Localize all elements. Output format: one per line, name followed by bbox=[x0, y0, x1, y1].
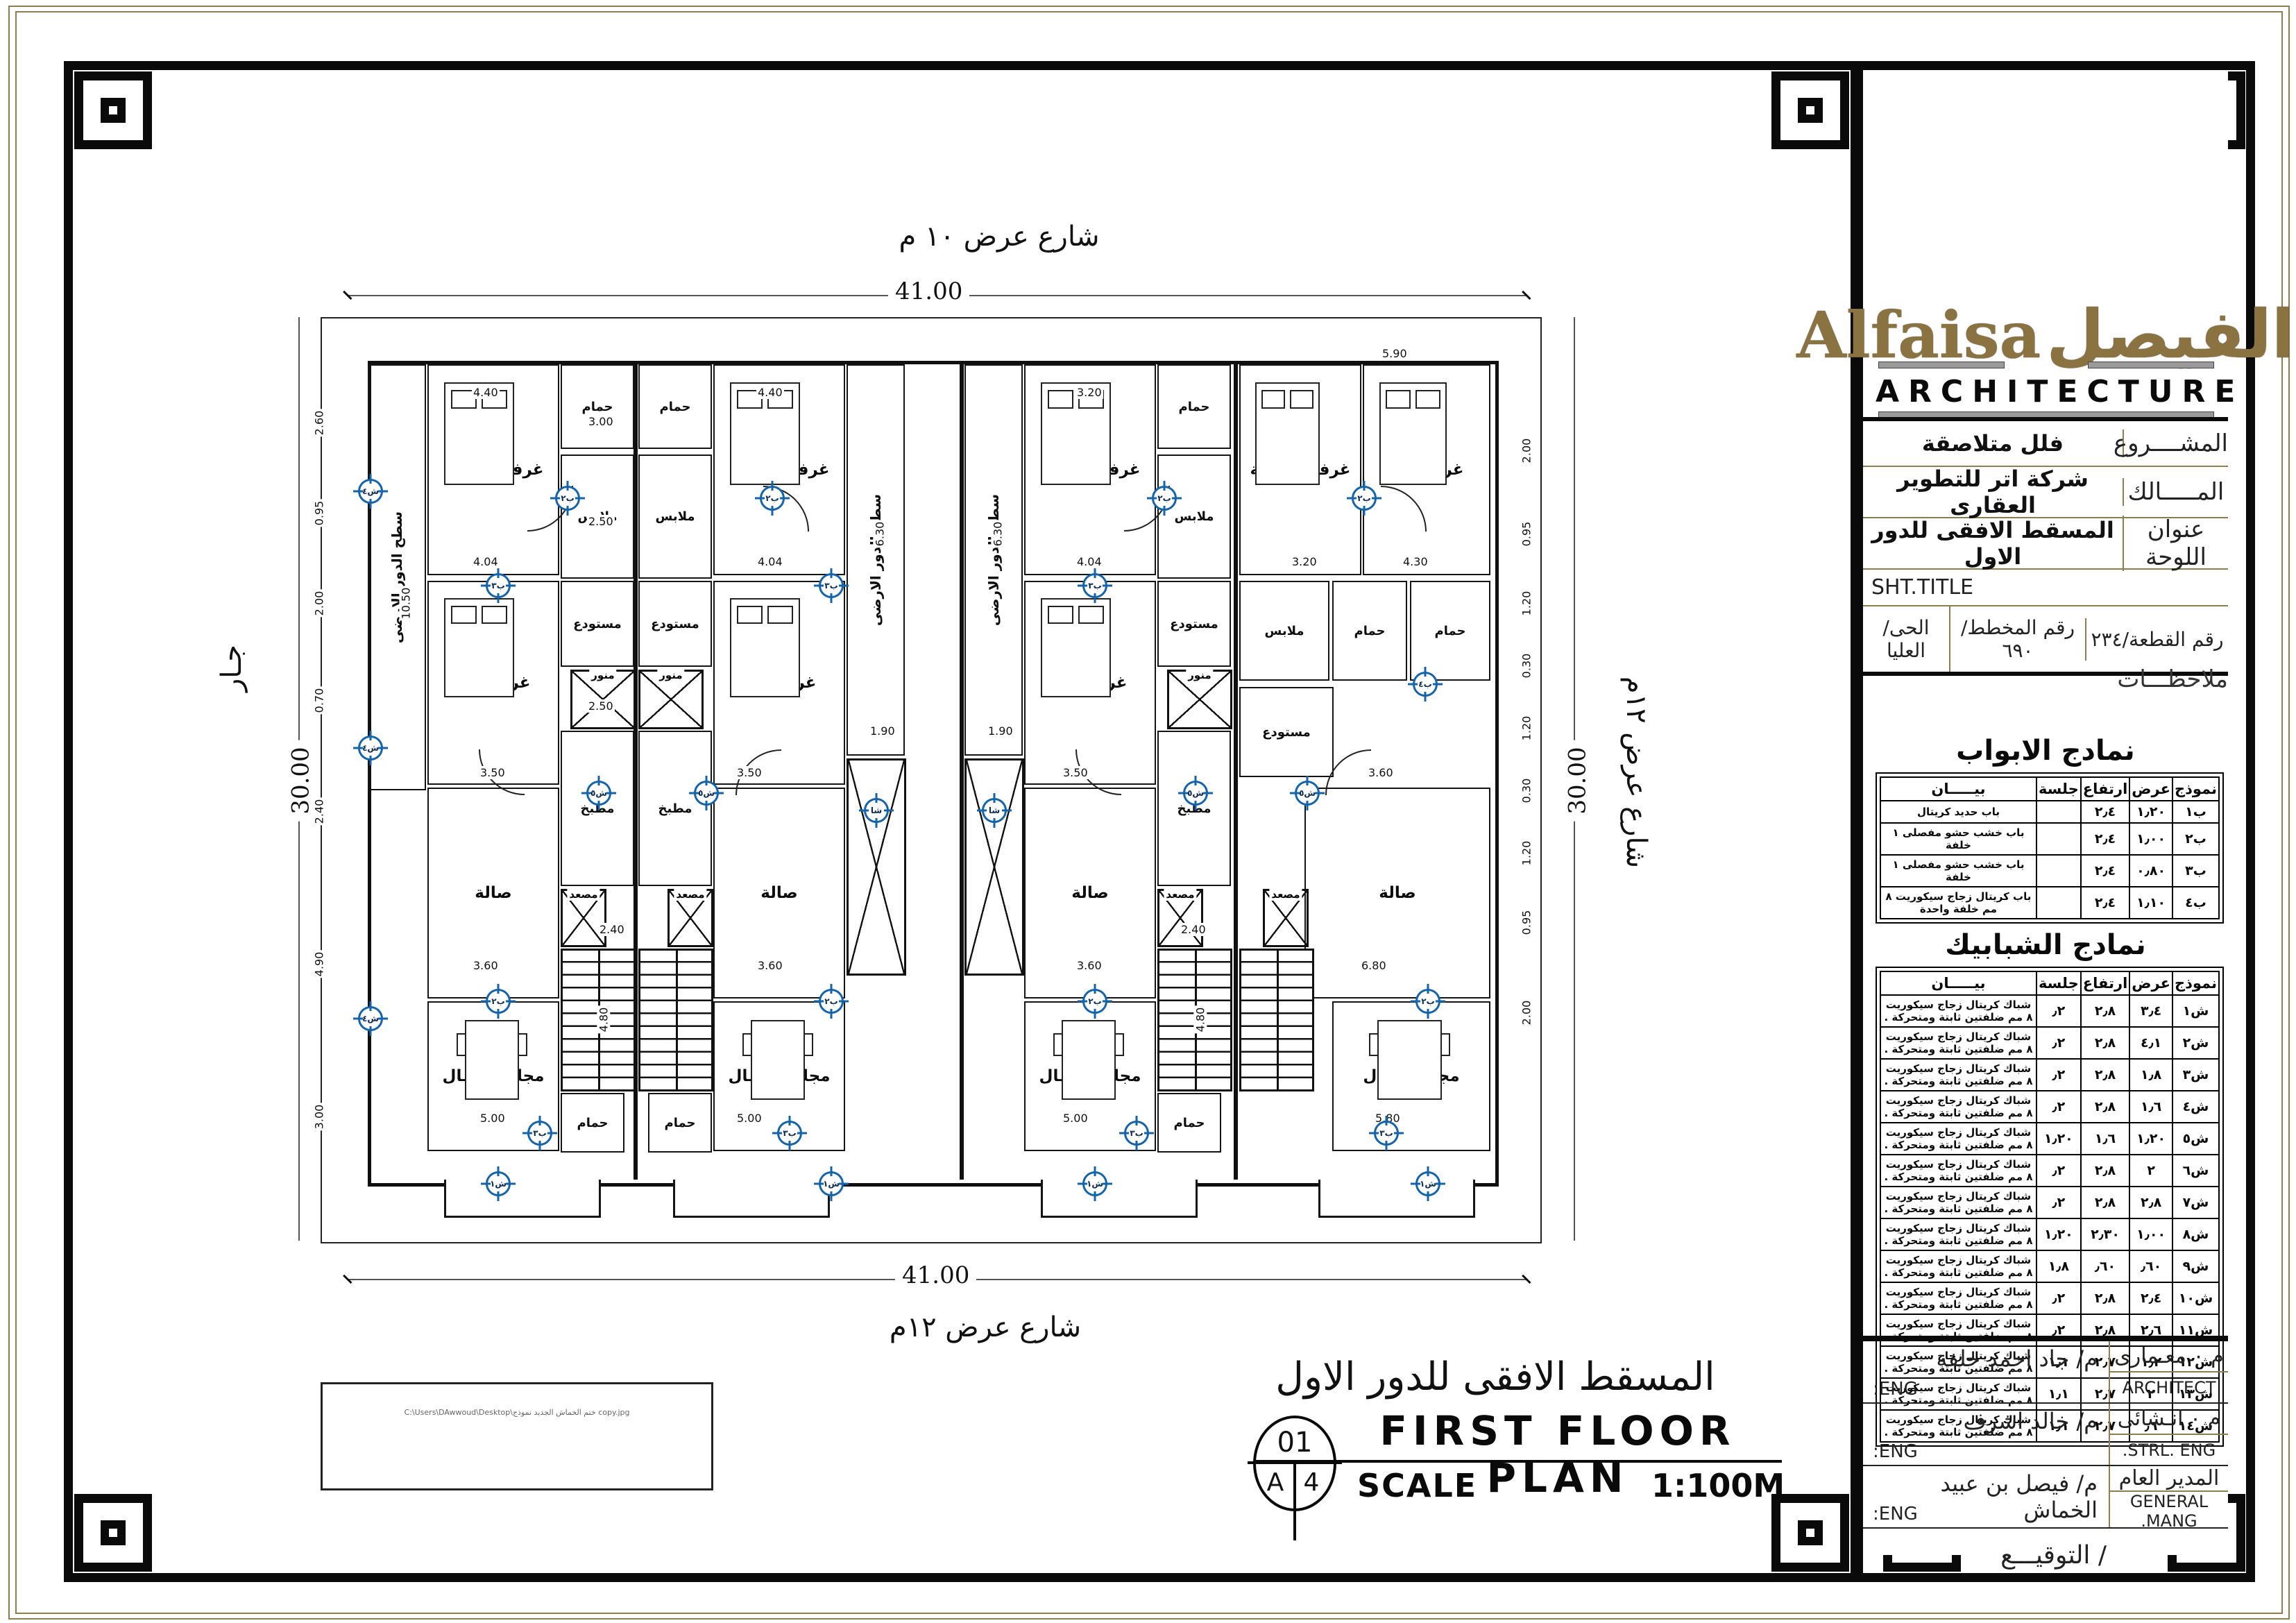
schedule-cell: ش٢ bbox=[2172, 1027, 2219, 1059]
schedule-row: ب٢١٫٠٠٢٫٤باب خشب حشو مفصلى ١ خلفة bbox=[1880, 823, 2219, 855]
opening-tag-label: شا bbox=[869, 803, 884, 818]
schedule-header: جلسة bbox=[2036, 777, 2081, 801]
scale-value: 1:100M bbox=[1651, 1467, 1780, 1504]
plot-number: رقم القطعة/٢٣٤ bbox=[2085, 618, 2228, 661]
signature-label: التوقيـــع / bbox=[2000, 1541, 2107, 1570]
engineer-eng-caption: ENG: bbox=[1873, 1379, 1918, 1400]
opening-tag-label: ب٢ bbox=[824, 994, 839, 1009]
opening-tag-label: ب٣ bbox=[1379, 1125, 1394, 1141]
info-row-sheet-title: عنوان اللوحة المسقط الافقى للدور الاول bbox=[1863, 518, 2228, 570]
logo-bar bbox=[2088, 362, 2214, 368]
schedule-cell: ١٫٦ bbox=[2129, 1091, 2172, 1123]
opening-tag-label: ش٥ bbox=[591, 785, 606, 801]
dimension-label: 2.60 bbox=[312, 409, 325, 437]
scale-label: SCALE bbox=[1357, 1467, 1477, 1504]
dimension-label: 3.50 bbox=[735, 766, 763, 779]
dimension-label: 1.90 bbox=[987, 724, 1014, 738]
opening-tag: ب٢ bbox=[486, 989, 511, 1014]
dimension-label: 5.00 bbox=[1062, 1112, 1089, 1125]
room: ملابس bbox=[1157, 454, 1231, 579]
schedule-row: ش٥١٫٢٠١٫٦١٫٢٠شباك كريتال زجاج سيكوريت ٨ … bbox=[1880, 1123, 2219, 1155]
schedule-cell: باب خشب حشو مفصلى ١ خلفة bbox=[1880, 855, 2036, 887]
schedule-cell: ٫٢ bbox=[2036, 1091, 2081, 1123]
project-info-table: المشــــروع فلل متلاصقة المـــــالك شركة… bbox=[1863, 417, 2228, 676]
schedule-cell: باب حديد كريتال bbox=[1880, 801, 2036, 823]
schedule-cell: شباك كريتال زجاج سيكوريت ٨ مم ضلفتين ثاب… bbox=[1880, 1187, 2036, 1218]
dimension-label: 4.40 bbox=[472, 386, 500, 399]
dimension-label: 5.00 bbox=[735, 1112, 763, 1125]
opening-tag-label: ش١ bbox=[824, 1176, 839, 1191]
dimension-label: 3.60 bbox=[1075, 959, 1103, 972]
table-icon bbox=[751, 1020, 805, 1099]
opening-tag-label: ب٢ bbox=[491, 994, 506, 1009]
drawing-sheet: شارع عرض ١٠ م 41.00 41.00 شارع عرض ١٢م 3… bbox=[0, 0, 2296, 1623]
room-label: حمام bbox=[665, 1116, 696, 1130]
schedule-cell: ٫٢ bbox=[2036, 1059, 2081, 1091]
opening-tag-label: ب٢ bbox=[1087, 994, 1103, 1009]
room-label: ملابس bbox=[1264, 624, 1304, 638]
schedule-cell bbox=[2036, 823, 2081, 855]
room-label: سطح الدور الارضى bbox=[389, 511, 405, 643]
info-value: فلل متلاصقة bbox=[1863, 430, 2123, 457]
engineer-role-ar: م ٠ انـشائى bbox=[2110, 1404, 2228, 1435]
street-label-top: شارع عرض ١٠ م bbox=[819, 221, 1180, 253]
window-schedule-title: نمادج الشبابيك bbox=[1863, 929, 2228, 961]
schedule-cell: ٣٫٤ bbox=[2129, 995, 2172, 1027]
room-label: مستودع bbox=[1170, 617, 1218, 631]
engineer-row: م ٠ انـشائىSTRL. ENG.م/ خالد اشرفENG: bbox=[1863, 1404, 2228, 1466]
dimension-label: 6.30 bbox=[991, 520, 1004, 548]
room: حمام bbox=[1157, 1093, 1221, 1153]
dimension-label: 4.40 bbox=[756, 386, 784, 399]
dimension-label: 2.40 bbox=[312, 798, 325, 826]
room-label: صالة bbox=[1379, 884, 1415, 902]
schedule-cell: ٢٫٤ bbox=[2081, 801, 2130, 823]
schedule-cell bbox=[2036, 887, 2081, 919]
opening-tag-label: ب٣ bbox=[1087, 578, 1103, 593]
schedule-row: ب٣٠٫٨٠٢٫٤باب خشب حشو مفصلى ١ خلفة bbox=[1880, 855, 2219, 887]
logo-bar bbox=[1878, 362, 2005, 368]
room: سطح الدور الارضى bbox=[964, 364, 1023, 756]
open-shaft bbox=[964, 758, 1024, 976]
schedule-row: ب١١٫٢٠٢٫٤باب حديد كريتال bbox=[1880, 801, 2219, 823]
dimension-label: 1.90 bbox=[869, 724, 896, 738]
dimension-label: 0.95 bbox=[1520, 520, 1533, 548]
dimension-label: 1.20 bbox=[1520, 715, 1533, 742]
schedule-cell bbox=[2036, 801, 2081, 823]
dimension-label: 0.95 bbox=[312, 500, 325, 527]
file-path-watermark: C:\Users\DAwwoud\Desktop\ختم الخماش الجد… bbox=[323, 1408, 711, 1417]
bed-icon bbox=[1041, 598, 1111, 697]
room-label: حمام bbox=[660, 400, 691, 414]
schedule-cell: ٢٫٨ bbox=[2081, 1155, 2130, 1187]
schedule-row: ش٨١٫٠٠٢٫٣٠١٫٢٠شباك كريتال زجاج سيكوريت ٨… bbox=[1880, 1218, 2219, 1250]
room-label: مستودع bbox=[1262, 725, 1311, 740]
shaft-label: مصعد bbox=[674, 888, 706, 901]
room: مستودع bbox=[1239, 687, 1334, 777]
schedule-cell: ٢٫٨ bbox=[2081, 1059, 2130, 1091]
engineer-role-en: ARCHITECT bbox=[2110, 1373, 2228, 1402]
dimension-label: 0.95 bbox=[1520, 909, 1533, 937]
opening-tag-label: ب٢ bbox=[1420, 994, 1436, 1009]
info-label: عنوان اللوحة bbox=[2123, 516, 2228, 571]
dimension-label: 6.80 bbox=[1360, 959, 1388, 972]
schedule-cell: ١٫٢٠ bbox=[2036, 1218, 2081, 1250]
schedule-cell: شباك كريتال زجاج سيكوريت ٨ مم ضلفتين ثاب… bbox=[1880, 1123, 2036, 1155]
opening-tag-label: ش٤ bbox=[363, 484, 378, 499]
dim-right-value: 30.00 bbox=[1564, 740, 1592, 821]
dimension-label: 3.60 bbox=[1367, 766, 1395, 779]
opening-tag: شا bbox=[864, 798, 889, 823]
opening-tag: ش٥ bbox=[1183, 781, 1208, 806]
bed-icon bbox=[1255, 382, 1320, 485]
schedule-cell: ٫٢ bbox=[2036, 1187, 2081, 1218]
title-block: Alfaisa الفيصل bbox=[1863, 70, 2228, 1555]
opening-tag: ب٣ bbox=[527, 1121, 552, 1146]
elevator-shaft: مصعد bbox=[1157, 889, 1203, 947]
dim-left-value: 30.00 bbox=[287, 740, 315, 821]
info-row-project: المشــــروع فلل متلاصقة bbox=[1863, 421, 2228, 467]
opening-tag-label: ش١ bbox=[1420, 1176, 1436, 1191]
detail-symbol-vline bbox=[1293, 1464, 1296, 1540]
table-icon bbox=[1062, 1020, 1116, 1099]
schedule-cell: ب٣ bbox=[2172, 855, 2219, 887]
staircase bbox=[638, 949, 713, 1091]
street-label-bottom: شارع عرض ١٢م bbox=[805, 1311, 1166, 1343]
opening-tag-label: ش٥ bbox=[699, 785, 714, 801]
room-label: صالة bbox=[1071, 884, 1108, 902]
room-label: ملابس bbox=[655, 509, 695, 524]
schedule-header: نموذج bbox=[2172, 777, 2219, 801]
street-label-right: شارع عرض ١٢م bbox=[1620, 677, 1652, 868]
room: سطح الدور الارضى bbox=[847, 364, 905, 756]
dimension-label: 2.00 bbox=[1520, 437, 1533, 465]
schedule-cell: ش٦ bbox=[2172, 1155, 2219, 1187]
info-value: شركة اتر للتطوير العقارى bbox=[1863, 466, 2123, 518]
dimension-label: 0.30 bbox=[1520, 652, 1533, 680]
engineer-role-en: STRL. ENG. bbox=[2110, 1435, 2228, 1465]
schedule-cell: شباك كريتال زجاج سيكوريت ٨ مم ضلفتين ثاب… bbox=[1880, 1282, 2036, 1314]
dimension-label: 4.80 bbox=[1193, 1006, 1207, 1034]
schedule-cell: ١٫٢٠ bbox=[2036, 1123, 2081, 1155]
shaft-label: منور bbox=[589, 669, 616, 681]
stamp-box: C:\Users\DAwwoud\Desktop\ختم الخماش الجد… bbox=[321, 1382, 713, 1490]
opening-tag: ب٤ bbox=[1413, 672, 1438, 697]
schedule-cell: ٢٫٨ bbox=[2081, 1187, 2130, 1218]
info-row-owner: المـــــالك شركة اتر للتطوير العقارى bbox=[1863, 467, 2228, 518]
logo-text-en: Alfaisa bbox=[1796, 310, 2041, 362]
schedule-cell: ش٧ bbox=[2172, 1187, 2219, 1218]
schedule-cell: ١٫٠٠ bbox=[2129, 1218, 2172, 1250]
detail-symbol-hline bbox=[1248, 1461, 1342, 1464]
schedule-row: ش٦٢٢٫٨٫٢شباك كريتال زجاج سيكوريت ٨ مم ضل… bbox=[1880, 1155, 2219, 1187]
room: صالة bbox=[1304, 788, 1490, 999]
street-label-left: جـار bbox=[216, 645, 248, 692]
schedule-cell: ٢٫٨ bbox=[2081, 1091, 2130, 1123]
room: حمام bbox=[561, 1093, 624, 1153]
schedule-cell: شباك كريتال زجاج سيكوريت ٨ مم ضلفتين ثاب… bbox=[1880, 1218, 2036, 1250]
dimension-label: 5.90 bbox=[1381, 347, 1409, 360]
schedule-cell: ٢٫٨ bbox=[2081, 1027, 2130, 1059]
opening-tag-label: ب٣ bbox=[824, 578, 839, 593]
schedule-header: عرض bbox=[2129, 777, 2172, 801]
opening-tag: ب٢ bbox=[1152, 486, 1177, 511]
room: حمام bbox=[648, 1093, 712, 1153]
room: مستودع bbox=[1157, 581, 1231, 667]
table-icon bbox=[1377, 1020, 1443, 1099]
schedule-cell: ٢٫٨ bbox=[2081, 995, 2130, 1027]
opening-tag: ش١ bbox=[486, 1171, 511, 1196]
opening-tag-label: ش١ bbox=[1087, 1176, 1103, 1191]
room: مستودع bbox=[561, 581, 634, 667]
shaft-label: منور bbox=[657, 669, 684, 681]
opening-tag-label: ش٤ bbox=[363, 1011, 378, 1026]
shaft-label: مصعد bbox=[1164, 888, 1196, 901]
room-label: صالة bbox=[475, 884, 511, 902]
schedule-cell: ١٫٢٠ bbox=[2129, 801, 2172, 823]
dimension-label: 6.30 bbox=[873, 520, 886, 548]
schedule-cell: ش١٠ bbox=[2172, 1282, 2219, 1314]
schedule-cell: ش١ bbox=[2172, 995, 2219, 1027]
opening-tag: ب٢ bbox=[555, 486, 580, 511]
opening-tag-label: ب٣ bbox=[532, 1125, 547, 1141]
opening-tag: ب٢ bbox=[1352, 486, 1377, 511]
schedule-cell: ب٤ bbox=[2172, 887, 2219, 919]
party-wall bbox=[1234, 361, 1238, 1180]
room-label: مستودع bbox=[651, 617, 699, 631]
schedule-cell: ش٩ bbox=[2172, 1250, 2219, 1282]
room-label: حمام bbox=[1354, 624, 1386, 638]
corner-ornament bbox=[1771, 1494, 1849, 1572]
opening-tag-label: ب٢ bbox=[560, 491, 575, 506]
room: سطح الدور الارضى bbox=[368, 364, 426, 790]
schedule-cell: ٤٫١ bbox=[2129, 1027, 2172, 1059]
dimension-label: 3.20 bbox=[1075, 386, 1103, 399]
engineer-role-en: GENERAL MANG. bbox=[2110, 1492, 2228, 1531]
corner-ornament bbox=[74, 71, 152, 149]
engineer-role-ar: المدير العام bbox=[2110, 1466, 2228, 1492]
corner-ornament bbox=[1771, 71, 1849, 149]
engineers-block: م ٠ معـمارىARCHITECTم/ جاد احمد خلفةENG:… bbox=[1863, 1336, 2228, 1529]
dimension-label: 4.80 bbox=[597, 1006, 610, 1034]
dimension-label: 4.04 bbox=[756, 555, 784, 568]
info-label: المـــــالك bbox=[2123, 478, 2228, 506]
opening-tag: ش٥ bbox=[694, 781, 719, 806]
room-label: مستودع bbox=[573, 617, 622, 631]
schedule-cell: ١٫٨ bbox=[2129, 1059, 2172, 1091]
room: حمام bbox=[1332, 581, 1407, 681]
elevator-shaft: مصعد bbox=[1263, 889, 1309, 947]
dimension-label: 4.04 bbox=[1075, 555, 1103, 568]
dimension-label: 4.04 bbox=[472, 555, 500, 568]
schedule-header: نموذج bbox=[2172, 971, 2219, 995]
opening-tag: ش٤ bbox=[358, 1006, 383, 1031]
room: حمام bbox=[561, 364, 634, 449]
schedule-cell: شباك كريتال زجاج سيكوريت ٨ مم ضلفتين ثاب… bbox=[1880, 1059, 2036, 1091]
schedule-cell: شباك كريتال زجاج سيكوريت ٨ مم ضلفتين ثاب… bbox=[1880, 1091, 2036, 1123]
info-value: المسقط الافقى للدور الاول bbox=[1863, 517, 2123, 570]
sheet-title-caption: SHT.TITLE bbox=[1863, 570, 2228, 606]
dim-top-value: 41.00 bbox=[888, 278, 969, 305]
detail-reference-symbol: 01 A 4 bbox=[1253, 1416, 1336, 1511]
entrance-porch bbox=[444, 1180, 601, 1218]
opening-tag: ب٢ bbox=[1082, 989, 1107, 1014]
schedule-row: ش٤١٫٦٢٫٨٫٢شباك كريتال زجاج سيكوريت ٨ مم … bbox=[1880, 1091, 2219, 1123]
schedule-row: ش٩٫٦٠٫٦٠١٫٨شباك كريتال زجاج سيكوريت ٨ مم… bbox=[1880, 1250, 2219, 1282]
party-wall bbox=[960, 361, 964, 1180]
opening-tag-label: ش٥ bbox=[1188, 785, 1203, 801]
open-shaft bbox=[847, 758, 906, 976]
room: مطبخ bbox=[638, 731, 712, 886]
dim-bottom-value: 41.00 bbox=[895, 1261, 976, 1289]
opening-tag: ب٢ bbox=[760, 486, 785, 511]
engineer-name: م/ خالد اشرف bbox=[1963, 1408, 2098, 1434]
schedule-header: ارتفاع bbox=[2081, 777, 2130, 801]
dimension-label: 3.20 bbox=[1291, 555, 1318, 568]
room-label: سطح الدور الارضى bbox=[867, 494, 884, 626]
schedule-header: جلسة bbox=[2036, 971, 2081, 995]
schedule-header: بيـــــان bbox=[1880, 777, 2036, 801]
schedule-cell: ١٫٠٠ bbox=[2129, 823, 2172, 855]
entrance-porch bbox=[673, 1180, 830, 1218]
dimension-label: 5.00 bbox=[479, 1112, 507, 1125]
opening-tag-label: ب٤ bbox=[1418, 677, 1433, 692]
schedule-cell: ٫٦٠ bbox=[2129, 1250, 2172, 1282]
schedule-cell: ش٣ bbox=[2172, 1059, 2219, 1091]
room-label: سطح الدور الارضى bbox=[985, 494, 1002, 626]
engineer-row: م ٠ معـمارىARCHITECTم/ جاد احمد خلفةENG: bbox=[1863, 1341, 2228, 1404]
dimension-label: 10.50 bbox=[399, 586, 412, 621]
schedule-cell: باب خشب حشو مفصلى ١ خلفة bbox=[1880, 823, 2036, 855]
opening-tag: ش٥ bbox=[586, 781, 611, 806]
bed-icon bbox=[730, 598, 800, 697]
opening-tag: ش١ bbox=[819, 1171, 844, 1196]
schedule-cell: ش٥ bbox=[2172, 1123, 2219, 1155]
opening-tag: ش٥ bbox=[1295, 781, 1320, 806]
door-schedule-table: نموذجعرضارتفاعجلسةبيـــــانب١١٫٢٠٢٫٤باب … bbox=[1876, 772, 2224, 924]
opening-tag-label: شا bbox=[987, 803, 1002, 818]
engineer-eng-caption: ENG: bbox=[1873, 1504, 1918, 1524]
engineer-name: م/ جاد احمد خلفة bbox=[1936, 1345, 2098, 1372]
opening-tag: ش٤ bbox=[358, 479, 383, 504]
schedule-row: ش٣١٫٨٢٫٨٫٢شباك كريتال زجاج سيكوريت ٨ مم … bbox=[1880, 1059, 2219, 1091]
light-well: منور bbox=[638, 670, 704, 729]
schedule-cell: ش٨ bbox=[2172, 1218, 2219, 1250]
detail-number: 01 bbox=[1256, 1427, 1334, 1459]
plan-title-arabic: المسقط الافقى للدور الاول bbox=[1214, 1354, 1776, 1400]
bed-icon bbox=[1379, 382, 1447, 485]
dimension-label: 3.50 bbox=[1062, 766, 1089, 779]
room: حمام bbox=[1410, 581, 1490, 681]
room-label: مطبخ bbox=[658, 801, 692, 816]
schedule-cell: شباك كريتال زجاج سيكوريت ٨ مم ضلفتين ثاب… bbox=[1880, 1250, 2036, 1282]
opening-tag-label: ب٢ bbox=[1357, 491, 1372, 506]
bed-icon bbox=[444, 598, 514, 697]
opening-tag: ش٤ bbox=[358, 736, 383, 760]
opening-tag: ب٣ bbox=[777, 1121, 802, 1146]
notes-label: ملاحظـــات bbox=[1863, 661, 2228, 693]
dimension-label: 2.50 bbox=[587, 699, 615, 713]
dimension-label: 0.70 bbox=[312, 687, 325, 715]
opening-tag-label: ب٢ bbox=[765, 491, 780, 506]
schedule-cell: ب١ bbox=[2172, 801, 2219, 823]
schedule-cell: ٢ bbox=[2129, 1155, 2172, 1187]
schedule-row: ش٢٤٫١٢٫٨٫٢شباك كريتال زجاج سيكوريت ٨ مم … bbox=[1880, 1027, 2219, 1059]
dimension-label: 0.30 bbox=[1520, 777, 1533, 805]
opening-tag: ب٢ bbox=[1415, 989, 1440, 1014]
dimension-label: 2.00 bbox=[1520, 999, 1533, 1027]
schedule-cell: ٫٢ bbox=[2036, 1027, 2081, 1059]
staircase bbox=[1239, 949, 1314, 1091]
schedule-header: بيـــــان bbox=[1880, 971, 2036, 995]
logo-architecture-text: ARCHITECTURE bbox=[1876, 374, 2216, 409]
schedule-row: ش١٣٫٤٢٫٨٫٢شباك كريتال زجاج سيكوريت ٨ مم … bbox=[1880, 995, 2219, 1027]
schedule-cell: شباك كريتال زجاج سيكوريت ٨ مم ضلفتين ثاب… bbox=[1880, 1155, 2036, 1187]
dimension-label: 2.50 bbox=[587, 515, 615, 528]
room-label: حمام bbox=[1179, 400, 1210, 414]
schedule-cell: ٢٫٤ bbox=[2129, 1282, 2172, 1314]
dimension-label: 1.20 bbox=[1520, 590, 1533, 618]
dimension-label: 3.50 bbox=[479, 766, 507, 779]
schedule-cell: ٫٢ bbox=[2036, 1282, 2081, 1314]
schedule-cell: ٢٫٤ bbox=[2081, 823, 2130, 855]
schedule-header: عرض bbox=[2129, 971, 2172, 995]
opening-tag-label: ب٣ bbox=[491, 578, 506, 593]
schedule-cell: ١٫٨ bbox=[2036, 1250, 2081, 1282]
detail-sheet-number: 4 bbox=[1296, 1468, 1327, 1497]
opening-tag-label: ب٣ bbox=[1129, 1125, 1144, 1141]
corner-ornament bbox=[74, 1494, 152, 1572]
schedule-cell: ٢٫٤ bbox=[2081, 855, 2130, 887]
opening-tag: ب٣ bbox=[1082, 573, 1107, 598]
opening-tag: ب٣ bbox=[819, 573, 844, 598]
engineer-eng-caption: ENG: bbox=[1873, 1441, 1918, 1462]
shaft-label: مصعد bbox=[567, 888, 599, 901]
room-label: حمام bbox=[1174, 1116, 1205, 1130]
schedule-row: ش٧٢٫٨٢٫٨٫٢شباك كريتال زجاج سيكوريت ٨ مم … bbox=[1880, 1187, 2219, 1218]
shaft-label: مصعد bbox=[1269, 888, 1302, 901]
schedule-cell: ب٢ bbox=[2172, 823, 2219, 855]
opening-tag-label: ب٣ bbox=[782, 1125, 797, 1141]
room: ملابس bbox=[1239, 581, 1329, 681]
info-label: المشــــروع bbox=[2123, 430, 2228, 457]
room: ملابس bbox=[638, 454, 712, 579]
shaft-label: منور bbox=[1186, 669, 1213, 681]
dimension-label: 2.40 bbox=[1180, 923, 1207, 936]
schedule-cell: ٢٫٨ bbox=[2129, 1187, 2172, 1218]
dimension-label: 3.60 bbox=[472, 959, 500, 972]
opening-tag: ب٣ bbox=[1374, 1121, 1399, 1146]
entrance-porch bbox=[1041, 1180, 1198, 1218]
room-label: ملابس bbox=[1174, 509, 1214, 524]
opening-tag-label: ب٢ bbox=[1157, 491, 1172, 506]
schedule-cell: ٠٫٨٠ bbox=[2129, 855, 2172, 887]
dimension-label: 1.20 bbox=[1520, 840, 1533, 867]
detail-sheet-letter: A bbox=[1260, 1468, 1291, 1497]
entrance-porch bbox=[1318, 1180, 1475, 1218]
schedule-cell: شباك كريتال زجاج سيكوريت ٨ مم ضلفتين ثاب… bbox=[1880, 995, 2036, 1027]
opening-tag-label: ش١ bbox=[491, 1176, 506, 1191]
dimension-label: 2.40 bbox=[598, 923, 626, 936]
schedule-cell: ٢٫٣٠ bbox=[2081, 1218, 2130, 1250]
schedule-header: ارتفاع bbox=[2081, 971, 2130, 995]
schedule-row: ب٤١٫١٠٢٫٤باب كريتال زجاج سيكوريت ٨ مم خل… bbox=[1880, 887, 2219, 919]
schedule-cell: ٢٫٨ bbox=[2081, 1282, 2130, 1314]
dimension-label: 3.60 bbox=[756, 959, 784, 972]
engineer-row: المدير العامGENERAL MANG.م/ فيصل بن عبيد… bbox=[1863, 1466, 2228, 1529]
light-well: منور bbox=[1167, 670, 1232, 729]
opening-tag-label: ش٤ bbox=[363, 740, 378, 756]
